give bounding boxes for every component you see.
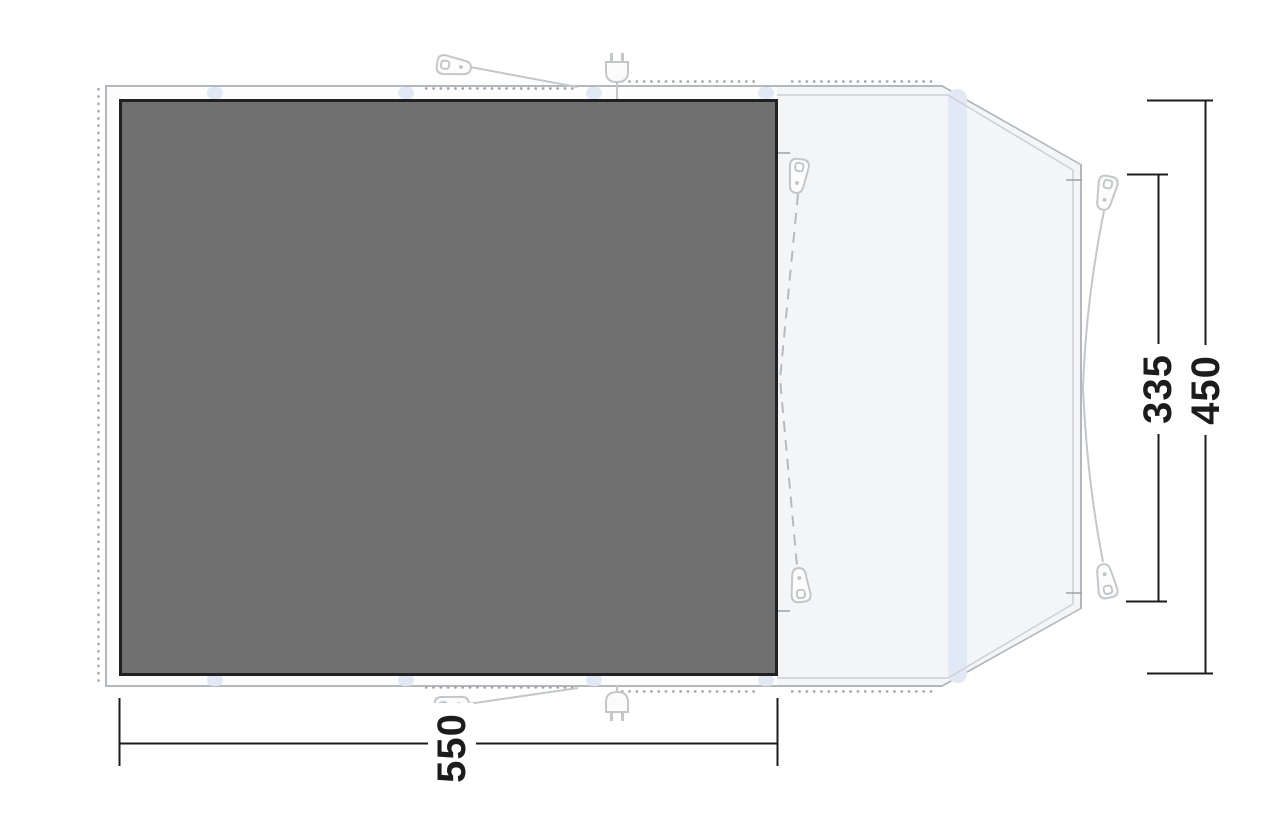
tent-peg-icon <box>436 54 472 78</box>
power-plug-icon <box>606 692 628 721</box>
dimension-label-inner-depth: 335 <box>1136 344 1180 434</box>
dimension-label-width: 550 <box>430 703 474 793</box>
floorplan-drawing <box>0 0 1280 834</box>
canopy-section <box>777 87 1080 685</box>
tent-floorplan-diagram: 550 335 450 <box>0 0 1280 834</box>
pole-stripe <box>948 89 967 683</box>
tent-peg-icon <box>1093 562 1119 599</box>
guy-line-right-upper <box>1083 211 1104 388</box>
guy-line-top <box>470 67 577 87</box>
guy-line-bottom <box>468 688 578 704</box>
tent-peg-icon <box>1093 174 1119 211</box>
guy-line-right-lower <box>1083 388 1103 562</box>
groundsheet <box>121 101 777 675</box>
dimension-label-outer-depth: 450 <box>1184 345 1228 435</box>
power-plug-icon <box>606 53 628 82</box>
